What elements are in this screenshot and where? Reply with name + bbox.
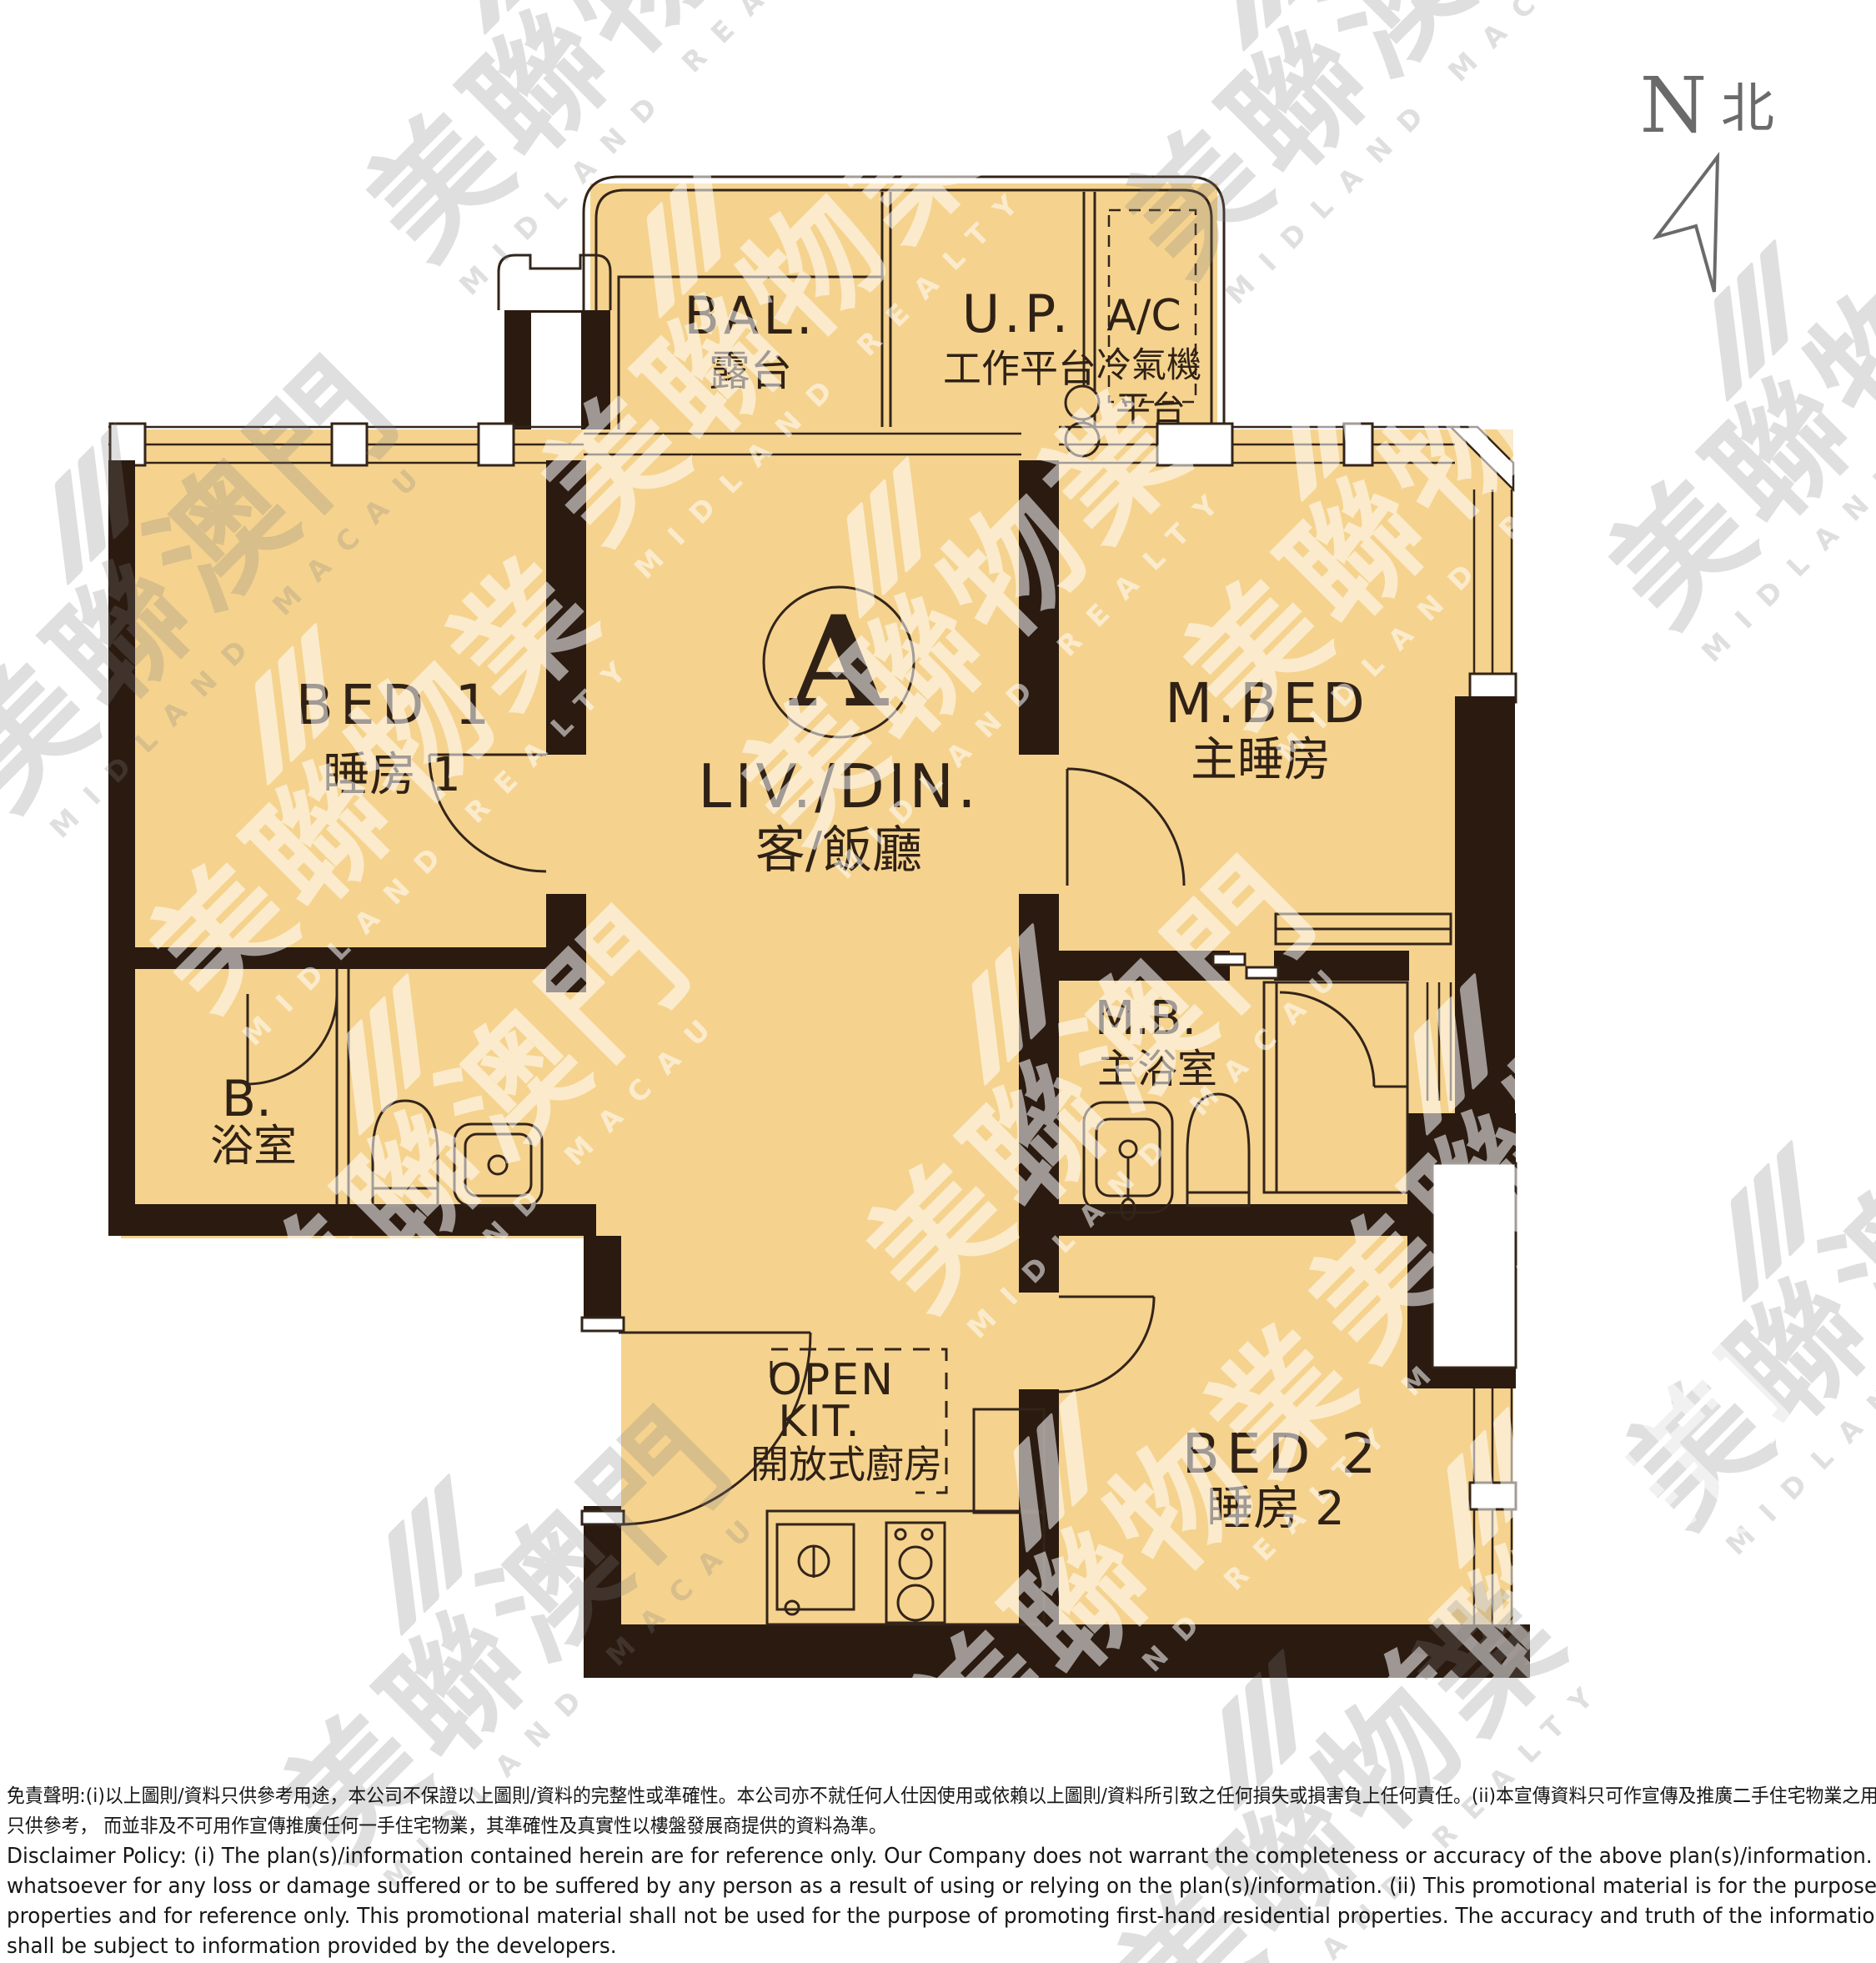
label-bed2-zh: 睡房 2 xyxy=(1206,1482,1344,1536)
window-post xyxy=(1157,424,1232,465)
label-utility-zh: 工作平台 xyxy=(943,346,1096,391)
north-arrow-icon xyxy=(1657,157,1718,292)
window-post xyxy=(479,424,514,465)
window-sill xyxy=(1470,1483,1516,1509)
unit-label: A xyxy=(789,589,890,735)
drain-pipe-icon xyxy=(1066,386,1099,419)
window-post xyxy=(110,424,145,465)
label-living-en: LIV./DIN. xyxy=(698,751,980,821)
floor-plan-page: A BAL. 露台 U.P. 工作平台 A/C 冷氣機 平台 BED 1 睡房 … xyxy=(0,0,1876,1963)
label-bed1-zh: 睡房 1 xyxy=(323,748,460,802)
disclaimer-line-zh-1: 免責聲明:(i)以上圖則/資料只供參考用途，本公司不保證以上圖則/資料的完整性或… xyxy=(7,1781,1876,1811)
label-ac-zh2: 平台 xyxy=(1116,389,1186,429)
window-post xyxy=(1344,424,1372,465)
disclaimer-line-en-4: shall be subject to information provided… xyxy=(7,1931,1876,1961)
north-letter: N xyxy=(1640,61,1708,150)
label-balcony-zh: 露台 xyxy=(709,347,792,395)
floor-plan: A BAL. 露台 U.P. 工作平台 A/C 冷氣機 平台 BED 1 睡房 … xyxy=(0,0,1876,1963)
label-ac-zh1: 冷氣機 xyxy=(1096,344,1201,385)
window-post xyxy=(332,424,367,465)
service-shaft xyxy=(1432,1163,1516,1368)
label-bath-en: B. xyxy=(222,1070,272,1128)
north-zh: 北 xyxy=(1721,78,1774,140)
label-bed2-en: BED 2 xyxy=(1182,1422,1383,1486)
label-kitchen-zh: 開放式廚房 xyxy=(750,1442,942,1487)
label-living-zh: 客/飯廳 xyxy=(755,821,922,880)
disclaimer-line-en-3: properties and for reference only. This … xyxy=(7,1901,1876,1931)
label-mbed-en: M.BED xyxy=(1165,671,1370,735)
label-ac-en: A/C xyxy=(1106,291,1181,341)
label-bed1-en: BED 1 xyxy=(296,673,497,737)
disclaimer-line-en-1: Disclaimer Policy: (i) The plan(s)/infor… xyxy=(7,1841,1876,1871)
disclaimer-line-en-2: whatsoever for any loss or damage suffer… xyxy=(7,1871,1876,1901)
label-kitchen-en2: KIT. xyxy=(778,1397,861,1447)
disclaimer-line-zh-2: 只供參考， 而並非及不可用作宣傳推廣任何一手住宅物業，其準確性及真實性以樓盤發展… xyxy=(7,1811,1876,1841)
label-mbath-en: M.B. xyxy=(1095,992,1196,1046)
disclaimer: 免責聲明:(i)以上圖則/資料只供參考用途，本公司不保證以上圖則/資料的完整性或… xyxy=(7,1781,1876,1961)
label-utility-en: U.P. xyxy=(962,284,1073,344)
label-balcony-en: BAL. xyxy=(684,285,816,346)
label-bath-zh: 浴室 xyxy=(210,1122,297,1172)
north-compass: N 北 xyxy=(1640,61,1774,292)
label-mbed-zh: 主睡房 xyxy=(1191,733,1331,787)
label-mbath-zh: 主浴室 xyxy=(1097,1046,1217,1092)
